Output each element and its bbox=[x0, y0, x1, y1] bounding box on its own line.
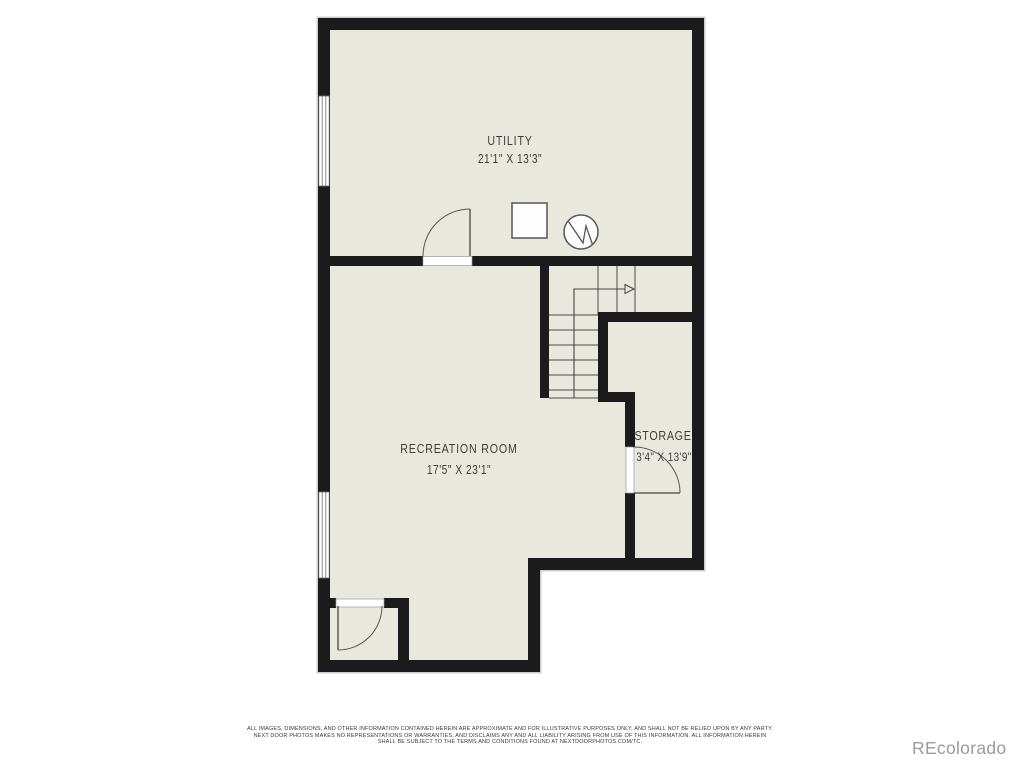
water-heater-square-icon bbox=[512, 203, 547, 238]
door-opening bbox=[336, 599, 384, 607]
room-dimensions-storage: 3'4" X 13'9" bbox=[636, 451, 691, 464]
door-opening bbox=[626, 447, 634, 493]
room-dimensions-recreation: 17'5" X 23'1" bbox=[427, 464, 491, 477]
disclaimer-line: ALL IMAGES, DIMENSIONS, AND OTHER INFORM… bbox=[0, 726, 1020, 733]
window-symbol-recreation bbox=[319, 492, 329, 578]
wall-segment bbox=[625, 493, 635, 570]
floorplan-canvas: UTILITY 21'1" X 13'3" RECREATION ROOM 17… bbox=[0, 0, 1020, 765]
wall-segment bbox=[398, 598, 409, 672]
wall-segment bbox=[318, 18, 704, 30]
recolorado-watermark: REcolorado bbox=[912, 738, 1006, 759]
disclaimer-text: ALL IMAGES, DIMENSIONS, AND OTHER INFORM… bbox=[0, 726, 1020, 746]
wall-segment bbox=[598, 312, 692, 322]
furnace-icon bbox=[564, 215, 598, 249]
floor-area bbox=[318, 18, 704, 672]
room-label-utility: UTILITY bbox=[487, 133, 532, 148]
wall-segment bbox=[330, 598, 336, 608]
room-label-storage: STORAGE bbox=[634, 429, 691, 443]
room-dimensions-utility: 21'1" X 13'3" bbox=[478, 153, 542, 166]
disclaimer-line: SHALL BE SUBJECT TO THE TERMS AND CONDIT… bbox=[0, 739, 1020, 746]
door-opening bbox=[423, 257, 472, 266]
room-label-recreation: RECREATION ROOM bbox=[400, 441, 517, 456]
disclaimer-line: NEXT DOOR PHOTOS MAKES NO REPRESENTATION… bbox=[0, 733, 1020, 740]
wall-segment bbox=[330, 256, 423, 266]
wall-segment bbox=[625, 392, 635, 447]
wall-segment bbox=[318, 660, 540, 672]
wall-segment bbox=[472, 256, 692, 266]
wall-segment bbox=[528, 558, 540, 672]
wall-segment bbox=[540, 256, 549, 398]
window-symbol-utility bbox=[319, 96, 329, 186]
wall-segment bbox=[692, 18, 704, 570]
wall-segment bbox=[598, 312, 608, 402]
wall-segment bbox=[528, 558, 704, 570]
